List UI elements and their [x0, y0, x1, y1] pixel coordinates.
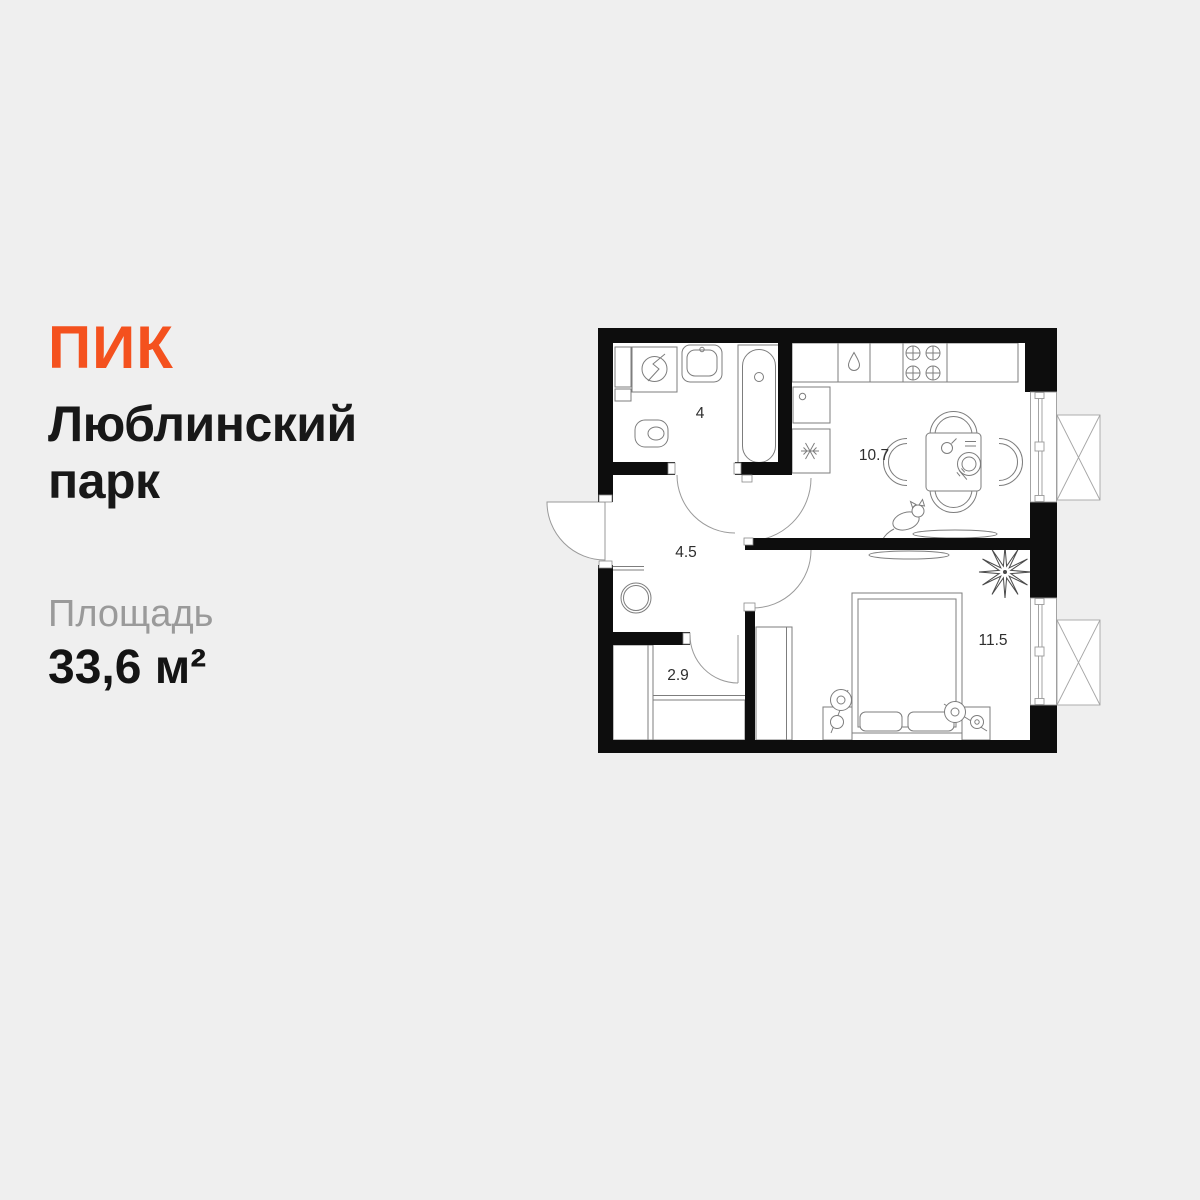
- pik-logo: ПИК: [48, 318, 174, 378]
- window-bedroom: [1031, 598, 1057, 705]
- room-label-hallway: 4.5: [675, 544, 697, 561]
- room-label-bathroom: 4: [696, 405, 705, 422]
- exterior-unit-box-bottom: [1057, 620, 1100, 705]
- room-label-bedroom: 11.5: [978, 632, 1007, 649]
- bathtub-icon: [738, 345, 780, 467]
- project-title: Люблинский парк: [48, 396, 408, 510]
- bedroom-wardrobe: [756, 627, 792, 740]
- pillow: [860, 712, 902, 731]
- room-label-wardrobe-room: 2.9: [667, 667, 689, 684]
- entrance-door-arc: [547, 502, 605, 560]
- tv-bedroom: [869, 551, 949, 559]
- room-label-kitchen-living: 10.7: [859, 447, 889, 464]
- floor-plan: 4 4.5 2.9 10.7 11.5: [534, 326, 1104, 758]
- washing-machine-icon: [632, 347, 677, 392]
- fridge-icon: [792, 429, 830, 473]
- exterior-unit-box-top: [1057, 415, 1100, 500]
- listing-card: ПИК Люблинский парк Площадь 33,6 м²: [0, 0, 1200, 1200]
- area-value: 33,6 м²: [48, 640, 206, 695]
- tv-living-room: [913, 530, 997, 538]
- floor-plan-svg: 4 4.5 2.9 10.7 11.5: [534, 326, 1104, 758]
- toilet-icon: [635, 420, 668, 447]
- bathroom-shelf: [615, 347, 631, 401]
- dining-table: [926, 433, 981, 491]
- window-kitchen: [1031, 392, 1057, 502]
- bathroom-sink-icon: [682, 345, 722, 382]
- area-label: Площадь: [48, 594, 213, 636]
- kitchen-base-sink-icon: [793, 387, 830, 423]
- kitchen-counter: [792, 343, 1018, 382]
